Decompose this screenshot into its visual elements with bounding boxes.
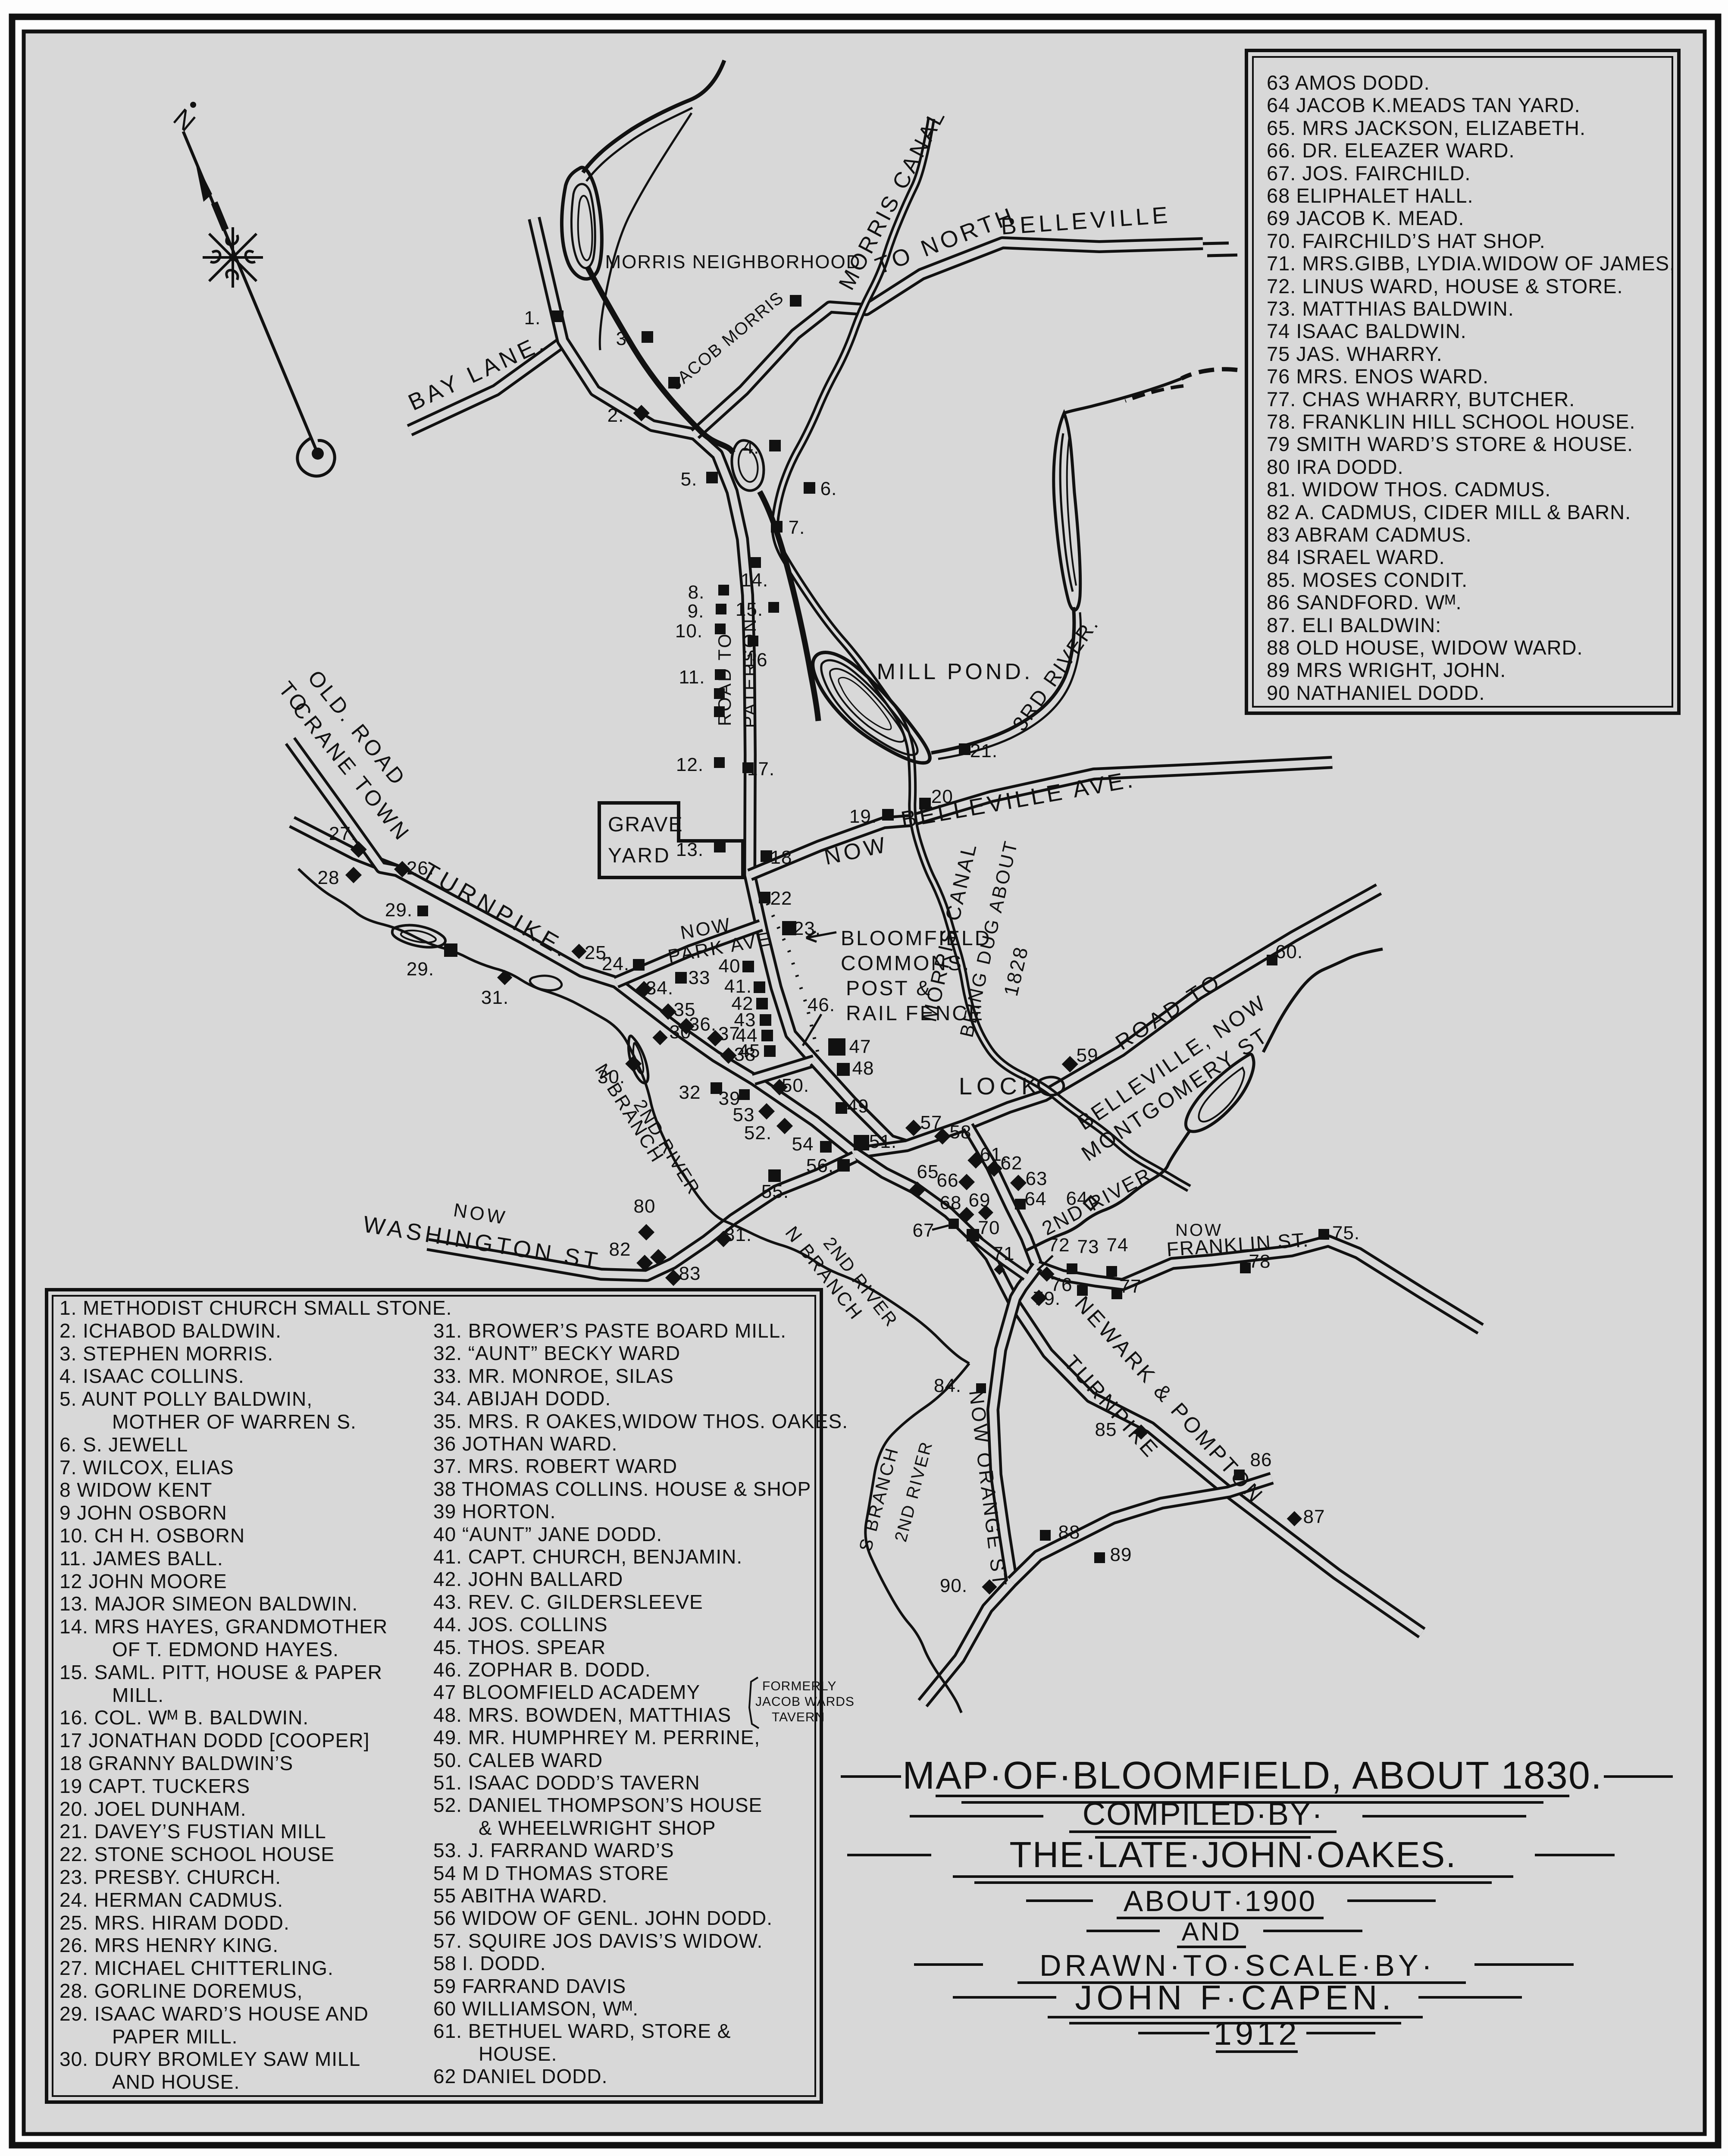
- svg-text:79.: 79.: [1033, 1288, 1061, 1309]
- svg-text:64: 64: [1066, 1188, 1088, 1209]
- svg-text:& WHEELWRIGHT SHOP: & WHEELWRIGHT SHOP: [479, 1817, 716, 1839]
- svg-text:20.: 20.: [931, 786, 959, 807]
- svg-text:62 DANIEL DODD.: 62 DANIEL DODD.: [433, 2065, 607, 2087]
- svg-text:1. METHODIST CHURCH SMALL STO: 1. METHODIST CHURCH SMALL STONE.: [59, 1297, 452, 1319]
- svg-text:10.: 10.: [675, 620, 703, 642]
- svg-text:46.: 46.: [808, 994, 835, 1015]
- svg-text:79 SMITH WARD’S STORE & HOUSE.: 79 SMITH WARD’S STORE & HOUSE.: [1267, 432, 1633, 455]
- svg-text:59: 59: [1077, 1045, 1099, 1066]
- svg-text:90.: 90.: [940, 1575, 967, 1596]
- svg-text:75.: 75.: [1332, 1222, 1360, 1244]
- svg-text:AND HOUSE.: AND HOUSE.: [112, 2071, 240, 2093]
- svg-text:26.: 26.: [407, 858, 434, 879]
- svg-text:90 NATHANIEL DODD.: 90 NATHANIEL DODD.: [1267, 681, 1485, 704]
- svg-text:MAP·OF·BLOOMFIELD, ABOUT 1830.: MAP·OF·BLOOMFIELD, ABOUT 1830.: [902, 1754, 1603, 1797]
- svg-text:38 THOMAS COLLINS. HOUSE & SH: 38 THOMAS COLLINS. HOUSE & SHOP: [433, 1478, 811, 1500]
- svg-text:JACOB WARDS: JACOB WARDS: [755, 1695, 855, 1709]
- svg-text:51. ISAAC DODD’S TAVERN: 51. ISAAC DODD’S TAVERN: [433, 1771, 700, 1794]
- svg-text:OF T. EDMOND HAYES.: OF T. EDMOND HAYES.: [112, 1638, 339, 1661]
- svg-text:89 MRS WRIGHT, JOHN.: 89 MRS WRIGHT, JOHN.: [1267, 658, 1506, 681]
- svg-text:87: 87: [1303, 1506, 1325, 1527]
- svg-text:50. CALEB WARD: 50. CALEB WARD: [433, 1749, 603, 1771]
- svg-text:48. MRS. BOWDEN, MATTHIAS: 48. MRS. BOWDEN, MATTHIAS: [433, 1704, 731, 1726]
- svg-text:74: 74: [1107, 1235, 1129, 1256]
- svg-text:47: 47: [849, 1036, 871, 1057]
- svg-text:29.: 29.: [385, 899, 413, 921]
- svg-text:COMPILED·BY·: COMPILED·BY·: [1083, 1796, 1324, 1832]
- svg-text:83 ABRAM CADMUS.: 83 ABRAM CADMUS.: [1267, 523, 1472, 546]
- svg-text:63 AMOS DODD.: 63 AMOS DODD.: [1267, 71, 1430, 94]
- svg-text:66. DR. ELEAZER WARD.: 66. DR. ELEAZER WARD.: [1267, 139, 1515, 162]
- svg-text:4. ISAAC COLLINS.: 4. ISAAC COLLINS.: [59, 1365, 244, 1387]
- svg-text:57. SQUIRE JOS DAVIS’S WIDOW.: 57. SQUIRE JOS DAVIS’S WIDOW.: [433, 1930, 763, 1952]
- svg-text:JOHN F·CAPEN.: JOHN F·CAPEN.: [1075, 1978, 1395, 2017]
- svg-text:11. JAMES BALL.: 11. JAMES BALL.: [59, 1547, 223, 1570]
- svg-text:55 ABITHA WARD.: 55 ABITHA WARD.: [433, 1884, 607, 1907]
- svg-text:24. HERMAN CADMUS.: 24. HERMAN CADMUS.: [59, 1889, 283, 1911]
- svg-text:16: 16: [746, 649, 768, 671]
- svg-text:AND: AND: [1182, 1917, 1242, 1946]
- svg-text:34.: 34.: [646, 978, 673, 999]
- svg-text:51.: 51.: [869, 1131, 897, 1152]
- svg-text:LOCK: LOCK: [959, 1072, 1042, 1100]
- svg-text:54: 54: [792, 1134, 814, 1155]
- svg-text:1.: 1.: [524, 307, 541, 329]
- svg-text:80 IRA DODD.: 80 IRA DODD.: [1267, 455, 1404, 478]
- svg-text:88: 88: [1058, 1522, 1080, 1543]
- svg-text:GRAVE: GRAVE: [608, 813, 683, 836]
- svg-text:MORRIS NEIGHBORHOOD: MORRIS NEIGHBORHOOD: [605, 251, 861, 273]
- svg-text:2.: 2.: [607, 405, 624, 426]
- svg-text:60 WILLIAMSON, Wᴹ.: 60 WILLIAMSON, Wᴹ.: [433, 1997, 639, 2020]
- svg-text:37. MRS. ROBERT WARD: 37. MRS. ROBERT WARD: [433, 1455, 677, 1477]
- svg-text:85: 85: [1095, 1419, 1117, 1440]
- svg-text:11.: 11.: [679, 667, 705, 688]
- svg-text:9.: 9.: [688, 601, 704, 622]
- svg-text:68: 68: [940, 1192, 962, 1213]
- svg-text:61. BETHUEL WARD, STORE &: 61. BETHUEL WARD, STORE &: [433, 2020, 731, 2042]
- svg-text:76 MRS. ENOS WARD.: 76 MRS. ENOS WARD.: [1267, 365, 1489, 388]
- svg-text:12.: 12.: [676, 754, 704, 775]
- svg-text:71: 71: [993, 1243, 1015, 1264]
- svg-text:40 “AUNT” JANE DODD.: 40 “AUNT” JANE DODD.: [433, 1523, 662, 1545]
- svg-text:36.: 36.: [689, 1014, 717, 1035]
- svg-text:52.: 52.: [744, 1122, 772, 1144]
- svg-text:23.: 23.: [793, 918, 821, 939]
- svg-text:48: 48: [852, 1058, 874, 1079]
- svg-text:60.: 60.: [1275, 941, 1303, 962]
- svg-text:MILL POND.: MILL POND.: [877, 659, 1033, 684]
- svg-text:72: 72: [1048, 1235, 1070, 1256]
- svg-text:65: 65: [917, 1161, 939, 1182]
- svg-text:77. CHAS WHARRY, BUTCHER.: 77. CHAS WHARRY, BUTCHER.: [1267, 388, 1575, 411]
- svg-text:19.: 19.: [849, 806, 877, 827]
- svg-text:ABOUT·1900: ABOUT·1900: [1124, 1885, 1317, 1918]
- svg-text:67. JOS. FAIRCHILD.: 67. JOS. FAIRCHILD.: [1267, 162, 1471, 185]
- svg-text:46. ZOPHAR B. DODD.: 46. ZOPHAR B. DODD.: [433, 1658, 651, 1681]
- svg-text:COMMONS.: COMMONS.: [841, 952, 970, 975]
- svg-text:68 ELIPHALET HALL.: 68 ELIPHALET HALL.: [1267, 184, 1474, 207]
- svg-text:33. MR. MONROE, SILAS: 33. MR. MONROE, SILAS: [433, 1365, 674, 1387]
- svg-text:25. MRS. HIRAM DODD.: 25. MRS. HIRAM DODD.: [59, 1912, 290, 1934]
- svg-text:45: 45: [739, 1040, 761, 1062]
- svg-text:17.: 17.: [747, 758, 775, 780]
- svg-text:12 JOHN MOORE: 12 JOHN MOORE: [59, 1570, 227, 1592]
- svg-text:YARD: YARD: [608, 844, 671, 867]
- svg-text:5. AUNT POLLY BALDWIN,: 5. AUNT POLLY BALDWIN,: [59, 1388, 313, 1410]
- svg-text:53: 53: [733, 1104, 755, 1125]
- svg-text:54 M D THOMAS STORE: 54 M D THOMAS STORE: [433, 1862, 669, 1884]
- svg-text:66: 66: [937, 1170, 959, 1191]
- svg-text:44. JOS. COLLINS: 44. JOS. COLLINS: [433, 1613, 608, 1636]
- svg-text:86: 86: [1250, 1449, 1272, 1470]
- svg-text:81. WIDOW THOS. CADMUS.: 81. WIDOW THOS. CADMUS.: [1267, 478, 1551, 501]
- svg-text:36 JOTHAN WARD.: 36 JOTHAN WARD.: [433, 1432, 617, 1455]
- svg-text:43. REV. C. GILDERSLEEVE: 43. REV. C. GILDERSLEEVE: [433, 1591, 703, 1613]
- svg-text:87. ELI BALDWIN:: 87. ELI BALDWIN:: [1267, 614, 1441, 636]
- svg-text:DRAWN·TO·SCALE·BY·: DRAWN·TO·SCALE·BY·: [1039, 1949, 1435, 1982]
- svg-text:70: 70: [978, 1217, 1000, 1238]
- svg-text:58 I. DODD.: 58 I. DODD.: [433, 1952, 546, 1974]
- svg-text:13.: 13.: [676, 839, 704, 860]
- svg-text:89: 89: [1110, 1544, 1132, 1565]
- svg-text:85. MOSES CONDIT.: 85. MOSES CONDIT.: [1267, 568, 1468, 591]
- svg-text:50.: 50.: [782, 1075, 809, 1096]
- svg-text:39 HORTON.: 39 HORTON.: [433, 1500, 556, 1523]
- svg-text:15.: 15.: [736, 599, 763, 620]
- svg-text:64: 64: [1025, 1188, 1047, 1210]
- svg-text:27.: 27.: [329, 823, 357, 844]
- svg-text:MILL.: MILL.: [112, 1684, 164, 1706]
- svg-text:18 GRANNY BALDWIN’S: 18 GRANNY BALDWIN’S: [59, 1752, 293, 1774]
- svg-text:5.: 5.: [681, 469, 698, 490]
- svg-text:58: 58: [950, 1122, 972, 1143]
- svg-text:TAVERN: TAVERN: [772, 1710, 825, 1724]
- svg-text:8 WIDOW KENT: 8 WIDOW KENT: [59, 1479, 212, 1501]
- svg-text:78. FRANKLIN HILL SCHOOL HOUSE: 78. FRANKLIN HILL SCHOOL HOUSE.: [1267, 410, 1635, 433]
- svg-text:7.: 7.: [789, 517, 805, 538]
- svg-text:31.: 31.: [481, 987, 509, 1008]
- svg-text:71. MRS.GIBB, LYDIA.WIDOW OF J: 71. MRS.GIBB, LYDIA.WIDOW OF JAMES,: [1267, 252, 1675, 275]
- svg-text:83: 83: [679, 1263, 701, 1284]
- svg-text:82: 82: [609, 1239, 631, 1260]
- svg-text:32. “AUNT” BECKY WARD: 32. “AUNT” BECKY WARD: [433, 1342, 680, 1364]
- svg-text:42. JOHN BALLARD: 42. JOHN BALLARD: [433, 1568, 623, 1590]
- svg-text:34. ABIJAH DODD.: 34. ABIJAH DODD.: [433, 1387, 611, 1410]
- svg-text:84 ISRAEL WARD.: 84 ISRAEL WARD.: [1267, 545, 1445, 568]
- svg-text:23. PRESBY. CHURCH.: 23. PRESBY. CHURCH.: [59, 1866, 281, 1888]
- svg-text:17 JONATHAN DODD [COOPER]: 17 JONATHAN DODD [COOPER]: [59, 1729, 369, 1752]
- svg-text:56 WIDOW OF GENL. JOHN DODD.: 56 WIDOW OF GENL. JOHN DODD.: [433, 1907, 773, 1929]
- svg-text:15. SAML. PITT, HOUSE & PAPER: 15. SAML. PITT, HOUSE & PAPER: [59, 1661, 382, 1683]
- svg-text:35. MRS. R OAKES,WIDOW THOS. O: 35. MRS. R OAKES,WIDOW THOS. OAKES.: [433, 1410, 848, 1432]
- svg-text:41. CAPT. CHURCH, BENJAMIN.: 41. CAPT. CHURCH, BENJAMIN.: [433, 1545, 742, 1568]
- svg-text:13. MAJOR SIMEON BALDWIN.: 13. MAJOR SIMEON BALDWIN.: [59, 1592, 358, 1615]
- svg-text:65. MRS JACKSON, ELIZABETH.: 65. MRS JACKSON, ELIZABETH.: [1267, 116, 1586, 139]
- svg-text:14.: 14.: [741, 570, 768, 591]
- svg-text:20. JOEL DUNHAM.: 20. JOEL DUNHAM.: [59, 1798, 247, 1820]
- svg-text:18: 18: [770, 847, 792, 868]
- svg-text:BLOOMFIELD: BLOOMFIELD: [841, 927, 991, 950]
- svg-text:25.: 25.: [585, 942, 612, 963]
- svg-text:53. J. FARRAND WARD’S: 53. J. FARRAND WARD’S: [433, 1839, 674, 1861]
- svg-text:69 JACOB K. MEAD.: 69 JACOB K. MEAD.: [1267, 207, 1464, 229]
- svg-text:29.: 29.: [407, 959, 434, 980]
- svg-text:PATERSON: PATERSON: [739, 617, 760, 728]
- svg-text:28. GORLINE DOREMUS,: 28. GORLINE DOREMUS,: [59, 1980, 303, 2002]
- svg-text:3. STEPHEN MORRIS.: 3. STEPHEN MORRIS.: [59, 1342, 273, 1365]
- svg-text:67: 67: [913, 1220, 935, 1241]
- svg-text:7. WILCOX, ELIAS: 7. WILCOX, ELIAS: [59, 1456, 234, 1479]
- svg-text:74 ISAAC BALDWIN.: 74 ISAAC BALDWIN.: [1267, 320, 1467, 342]
- svg-text:72. LINUS WARD, HOUSE & STORE.: 72. LINUS WARD, HOUSE & STORE.: [1267, 275, 1623, 298]
- svg-text:30.: 30.: [598, 1066, 625, 1087]
- svg-text:21. DAVEY’S FUSTIAN MILL: 21. DAVEY’S FUSTIAN MILL: [59, 1820, 326, 1843]
- svg-text:PAPER MILL.: PAPER MILL.: [112, 2025, 238, 2048]
- svg-text:84.: 84.: [934, 1375, 961, 1396]
- svg-text:77: 77: [1120, 1276, 1142, 1297]
- svg-text:31. BROWER’S PASTE BOARD MILL.: 31. BROWER’S PASTE BOARD MILL.: [433, 1319, 786, 1342]
- svg-text:78: 78: [1249, 1251, 1271, 1272]
- svg-text:28: 28: [318, 867, 340, 888]
- svg-text:81.: 81.: [724, 1224, 752, 1245]
- svg-text:27. MICHAEL CHITTERLING.: 27. MICHAEL CHITTERLING.: [59, 1957, 334, 1979]
- svg-text:HOUSE.: HOUSE.: [479, 2043, 557, 2065]
- svg-text:22: 22: [770, 888, 792, 909]
- svg-text:FORMERLY: FORMERLY: [762, 1679, 836, 1693]
- svg-text:RAIL FENCE: RAIL FENCE: [846, 1002, 984, 1025]
- svg-text:26. MRS HENRY KING.: 26. MRS HENRY KING.: [59, 1934, 279, 1956]
- svg-text:59 FARRAND DAVIS: 59 FARRAND DAVIS: [433, 1975, 626, 1997]
- svg-text:33: 33: [689, 967, 711, 988]
- svg-text:10. CH H. OSBORN: 10. CH H. OSBORN: [59, 1524, 245, 1547]
- svg-text:57: 57: [920, 1112, 942, 1133]
- svg-text:56.: 56.: [806, 1155, 834, 1176]
- svg-text:8.: 8.: [688, 582, 705, 603]
- svg-text:6. S. JEWELL: 6. S. JEWELL: [59, 1433, 188, 1456]
- svg-text:88 OLD HOUSE, WIDOW WARD.: 88 OLD HOUSE, WIDOW WARD.: [1267, 636, 1583, 659]
- svg-text:14. MRS HAYES, GRANDMOTHER: 14. MRS HAYES, GRANDMOTHER: [59, 1615, 388, 1638]
- svg-text:70. FAIRCHILD’S HAT SHOP.: 70. FAIRCHILD’S HAT SHOP.: [1267, 229, 1546, 252]
- svg-text:THE·LATE·JOHN·OAKES.: THE·LATE·JOHN·OAKES.: [1009, 1834, 1456, 1875]
- svg-text:80: 80: [634, 1196, 656, 1217]
- svg-text:62: 62: [1001, 1153, 1023, 1174]
- svg-text:32: 32: [679, 1082, 701, 1103]
- svg-text:73. MATTHIAS BALDWIN.: 73. MATTHIAS BALDWIN.: [1267, 297, 1514, 320]
- svg-text:6.: 6.: [820, 478, 837, 499]
- svg-text:22. STONE SCHOOL HOUSE: 22. STONE SCHOOL HOUSE: [59, 1843, 335, 1865]
- svg-text:47 BLOOMFIELD ACADEMY: 47 BLOOMFIELD ACADEMY: [433, 1681, 700, 1703]
- svg-text:69: 69: [969, 1190, 991, 1211]
- svg-text:3.: 3.: [616, 328, 633, 349]
- svg-text:86 SANDFORD. Wᴹ.: 86 SANDFORD. Wᴹ.: [1267, 591, 1462, 614]
- svg-text:49. MR. HUMPHREY M. PERRINE,: 49. MR. HUMPHREY M. PERRINE,: [433, 1726, 760, 1749]
- svg-text:82 A. CADMUS, CIDER MILL & BAR: 82 A. CADMUS, CIDER MILL & BARN.: [1267, 501, 1631, 523]
- svg-text:49: 49: [847, 1096, 869, 1117]
- svg-text:1912: 1912: [1213, 2015, 1300, 2052]
- svg-text:45. THOS. SPEAR: 45. THOS. SPEAR: [433, 1636, 606, 1658]
- svg-text:9 JOHN OSBORN: 9 JOHN OSBORN: [59, 1501, 227, 1524]
- svg-text:40: 40: [719, 956, 741, 977]
- svg-text:POST &: POST &: [846, 977, 932, 1000]
- svg-text:2. ICHABOD BALDWIN.: 2. ICHABOD BALDWIN.: [59, 1319, 282, 1342]
- svg-text:75 JAS. WHARRY.: 75 JAS. WHARRY.: [1267, 342, 1443, 365]
- svg-text:19 CAPT. TUCKERS: 19 CAPT. TUCKERS: [59, 1775, 250, 1797]
- svg-text:63: 63: [1026, 1168, 1048, 1189]
- svg-text:29. ISAAC WARD’S HOUSE AND: 29. ISAAC WARD’S HOUSE AND: [59, 2002, 369, 2025]
- svg-text:73: 73: [1077, 1236, 1099, 1257]
- svg-text:4.: 4.: [743, 437, 760, 458]
- svg-text:16. COL. Wᴹ B. BALDWIN.: 16. COL. Wᴹ B. BALDWIN.: [59, 1706, 309, 1729]
- svg-text:21.: 21.: [970, 740, 998, 761]
- svg-text:55.: 55.: [761, 1181, 789, 1202]
- svg-text:MOTHER OF WARREN S.: MOTHER OF WARREN S.: [112, 1410, 357, 1433]
- svg-text:52. DANIEL THOMPSON’S HOUSE: 52. DANIEL THOMPSON’S HOUSE: [433, 1794, 762, 1816]
- svg-text:30. DURY BROMLEY SAW MILL: 30. DURY BROMLEY SAW MILL: [59, 2048, 360, 2070]
- svg-text:64 JACOB K.MEADS TAN YARD.: 64 JACOB K.MEADS TAN YARD.: [1267, 94, 1581, 116]
